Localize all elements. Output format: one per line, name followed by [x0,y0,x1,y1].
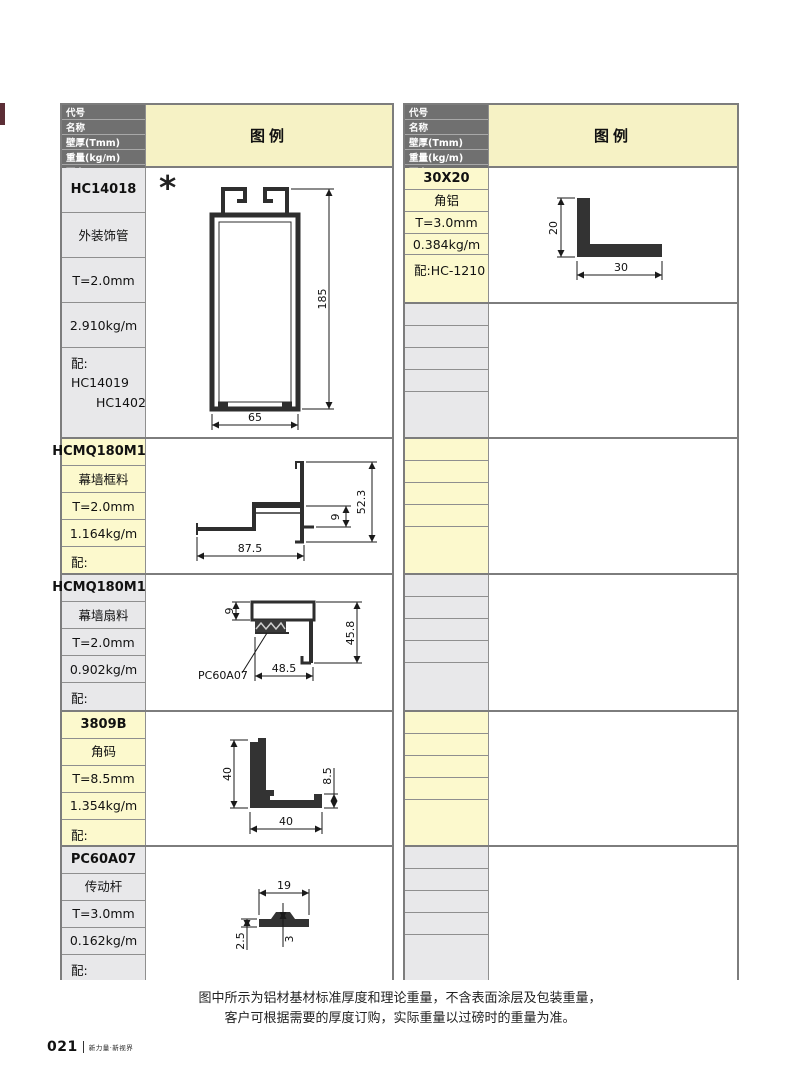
profile-drawing-hc14018: 185 65 [146,168,394,435]
footer-slogan: 新力量·新视界 [89,1042,134,1052]
match-line1: 配: HC14019 [71,354,143,393]
empty-profile-block [405,437,737,573]
empty-cell [405,756,488,778]
label-column: HCMQ180M16 幕墙扇料 T=2.0mm 0.902kg/m 配: [62,575,146,710]
empty-cell [405,847,488,869]
empty-cell [405,575,488,597]
profile-name: 幕墙框料 [62,466,145,493]
empty-legend-cell [489,712,737,845]
profile-weight: 0.162kg/m [62,928,145,955]
dim-65: 65 [248,411,262,424]
header-row-weight: 重量(kg/m) [62,150,145,165]
empty-cell [405,348,488,370]
dim-30: 30 [614,261,628,274]
profile-table-left: 代号 名称 壁厚(Tmm) 重量(kg/m) 配套 图例 HC14018 外装饰… [60,103,394,980]
profile-name: 幕墙扇料 [62,602,145,629]
match-line1: 配: [71,689,88,708]
profile-match: 配: [62,955,145,980]
match-line1: 配: [71,553,88,572]
empty-cell [405,527,488,573]
profile-block-hcmq180m16: HCMQ180M16 幕墙扇料 T=2.0mm 0.902kg/m 配: [62,573,392,710]
label-column: 30X20 角铝 T=3.0mm 0.384kg/m 配:HC-1210 [405,168,489,302]
page-footer: 021 新力量·新视界 [47,1039,133,1055]
profile-block-hc14018: HC14018 外装饰管 T=2.0mm 2.910kg/m 配: HC1401… [62,166,392,437]
label-column [405,575,489,710]
legend-drawing-cell: 87.5 9 52.3 [146,439,392,573]
empty-cell [405,619,488,641]
match-line2: HC14024 [71,393,154,412]
profile-block-pc60a07: PC60A07 传动杆 T=3.0mm 0.162kg/m 配: [62,845,392,980]
profile-drawing-hcmq180m15: 87.5 9 52.3 [146,439,394,571]
profile-block-30x20: 30X20 角铝 T=3.0mm 0.384kg/m 配:HC-1210 [405,166,737,302]
dim-52-3: 52.3 [355,490,368,515]
profile-thickness: T=2.0mm [62,258,145,303]
dim-19: 19 [277,879,291,892]
empty-cell [405,505,488,527]
empty-legend-cell [489,575,737,710]
label-column: PC60A07 传动杆 T=3.0mm 0.162kg/m 配: [62,847,146,980]
empty-cell [405,913,488,935]
dim-3: 3 [283,936,296,943]
footnote: 图中所示为铝材基材标准厚度和理论重量，不含表面涂层及包装重量， 客户可根据需要的… [0,989,800,1028]
empty-profile-block [405,573,737,710]
header-row-name: 名称 [62,120,145,135]
empty-legend-cell [489,304,737,437]
profile-thickness: T=3.0mm [62,901,145,928]
profile-code: HC14018 [62,168,145,213]
label-column [405,847,489,980]
empty-cell [405,370,488,392]
empty-cell [405,712,488,734]
dim-9-top: 9 [223,608,236,615]
legend-drawing-cell: 40 8.5 40 [146,712,392,845]
profile-drawing-3809b: 40 8.5 40 [146,712,394,843]
profile-drawing-hcmq180m16: 9 45.8 48.5 PC60A07 [146,575,394,708]
match-line1: 配:HC-1210 [414,261,485,280]
empty-cell [405,800,488,845]
label-column: HCMQ180M15 幕墙框料 T=2.0mm 1.164kg/m 配: [62,439,146,573]
left-table-header: 代号 名称 壁厚(Tmm) 重量(kg/m) 配套 图例 [62,105,392,166]
empty-cell [405,461,488,483]
dim-40-v: 40 [221,767,234,781]
profile-match: 配: [62,547,145,573]
match-line1: 配: [71,826,88,845]
dim-87-5: 87.5 [238,542,263,555]
dim-8-5: 8.5 [321,767,334,785]
header-label-column: 代号 名称 壁厚(Tmm) 重量(kg/m) 配套 [405,105,489,166]
label-column: 3809B 角码 T=8.5mm 1.354kg/m 配: [62,712,146,845]
profile-weight: 0.902kg/m [62,656,145,683]
profile-block-hcmq180m15: HCMQ180M15 幕墙框料 T=2.0mm 1.164kg/m 配: [62,437,392,573]
label-column: HC14018 外装饰管 T=2.0mm 2.910kg/m 配: HC1401… [62,168,146,437]
profile-code: PC60A07 [62,847,145,874]
page-edge-mark [0,103,5,125]
empty-profile-block [405,845,737,980]
empty-cell [405,483,488,505]
profile-name: 传动杆 [62,874,145,901]
label-column [405,304,489,437]
dim-45-8: 45.8 [344,621,357,646]
empty-cell [405,935,488,980]
header-row-thickness: 壁厚(Tmm) [405,135,488,150]
profile-code: 30X20 [405,168,488,190]
profile-drawing-30x20: 20 30 [489,168,739,300]
header-row-code: 代号 [62,105,145,120]
empty-legend-cell [489,847,737,980]
profile-match: 配: [62,683,145,710]
empty-cell [405,641,488,663]
dim-48-5: 48.5 [272,662,297,675]
dim-185: 185 [316,289,329,310]
footnote-line1: 图中所示为铝材基材标准厚度和理论重量，不含表面涂层及包装重量， [0,989,800,1009]
profile-weight: 0.384kg/m [405,234,488,255]
empty-cell [405,326,488,348]
empty-profile-block [405,302,737,437]
header-row-thickness: 壁厚(Tmm) [62,135,145,150]
profile-match: 配:HC-1210 [405,255,488,302]
profile-weight: 1.164kg/m [62,520,145,547]
empty-cell [405,891,488,913]
catalog-page: 代号 名称 壁厚(Tmm) 重量(kg/m) 配套 图例 HC14018 外装饰… [0,0,800,1085]
label-column [405,712,489,845]
header-row-name: 名称 [405,120,488,135]
profile-table-right: 代号 名称 壁厚(Tmm) 重量(kg/m) 配套 图例 30X20 角铝 T=… [403,103,739,980]
page-number: 021 [47,1039,78,1055]
footer-divider [83,1041,84,1053]
empty-cell [405,663,488,710]
empty-profile-block [405,710,737,845]
legend-drawing-cell: 20 30 [489,168,737,302]
header-label-column: 代号 名称 壁厚(Tmm) 重量(kg/m) 配套 [62,105,146,166]
empty-legend-cell [489,439,737,573]
profile-code: HCMQ180M15 [62,439,145,466]
profile-name: 外装饰管 [62,213,145,258]
label-column [405,439,489,573]
dim-20: 20 [547,221,560,235]
empty-cell [405,597,488,619]
legend-header: 图例 [146,105,392,166]
legend-drawing-cell: * [146,168,392,437]
empty-cell [405,778,488,800]
profile-match: 配: [62,820,145,845]
footnote-line2: 客户可根据需要的厚度订购，实际重量以过磅时的重量为准。 [0,1009,800,1029]
empty-cell [405,392,488,437]
empty-cell [405,439,488,461]
right-table-header: 代号 名称 壁厚(Tmm) 重量(kg/m) 配套 图例 [405,105,737,166]
profile-code: HCMQ180M16 [62,575,145,602]
legend-header: 图例 [489,105,737,166]
profile-name: 角码 [62,739,145,766]
asterisk-marker: * [159,168,176,207]
callout-pc60a07: PC60A07 [198,669,248,682]
profile-thickness: T=8.5mm [62,766,145,793]
empty-cell [405,734,488,756]
profile-thickness: T=3.0mm [405,212,488,234]
profile-name: 角铝 [405,190,488,212]
header-row-weight: 重量(kg/m) [405,150,488,165]
profile-weight: 2.910kg/m [62,303,145,348]
match-line1: 配: [71,961,88,980]
legend-drawing-cell: 19 2.5 3 [146,847,392,980]
profile-drawing-pc60a07: 19 2.5 3 [146,847,394,978]
dim-2-5: 2.5 [234,932,247,950]
profile-block-3809b: 3809B 角码 T=8.5mm 1.354kg/m 配: [62,710,392,845]
header-row-code: 代号 [405,105,488,120]
profile-match: 配: HC14019 HC14024 [62,348,145,437]
profile-thickness: T=2.0mm [62,493,145,520]
empty-cell [405,304,488,326]
dim-40-w: 40 [279,815,293,828]
legend-drawing-cell: 9 45.8 48.5 PC60A07 [146,575,392,710]
profile-weight: 1.354kg/m [62,793,145,820]
profile-thickness: T=2.0mm [62,629,145,656]
profile-code: 3809B [62,712,145,739]
dim-9: 9 [329,514,342,521]
empty-cell [405,869,488,891]
